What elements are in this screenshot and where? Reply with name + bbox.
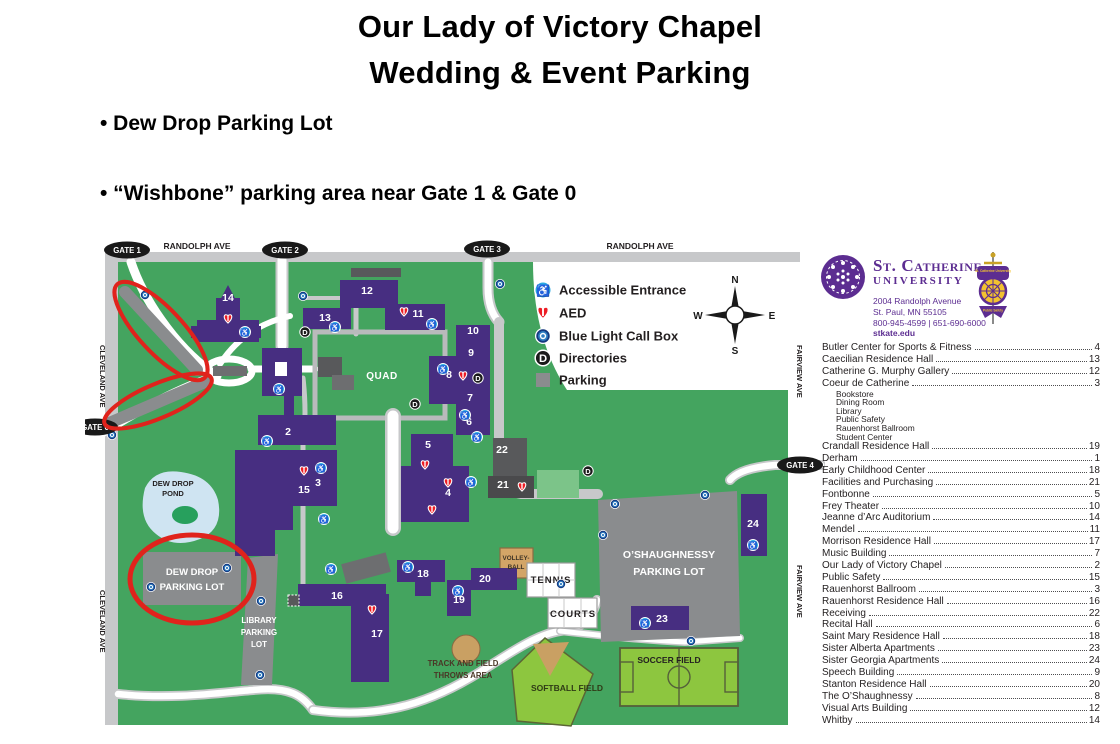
dotted-leader: [947, 603, 1087, 604]
svg-text:♿: ♿: [460, 411, 469, 420]
dewdrop-lot-label-2: PARKING LOT: [160, 582, 225, 593]
directory-entry: Speech Building9: [822, 667, 1100, 679]
fairview-ave-label-top: FAIRVIEW AVE: [795, 345, 804, 398]
building-label-12: 12: [361, 285, 373, 297]
oshaughnessy-lot-label-2: PARKING LOT: [633, 566, 705, 578]
directory-entry: Butler Center for Sports & Fitness4: [822, 342, 1100, 354]
directory-entry-page: 3: [1094, 378, 1100, 389]
directory-entry-page: 22: [1089, 608, 1100, 619]
dotted-leader: [889, 555, 1092, 556]
directory-entry-page: 15: [1089, 572, 1100, 583]
quad-label: QUAD: [366, 371, 397, 382]
svg-text:♿: ♿: [330, 323, 339, 332]
directory-entry-page: 19: [1089, 441, 1100, 452]
blue-light-icon: [256, 596, 265, 605]
directory-entry-page: 23: [1089, 643, 1100, 654]
directory-entry: Music Building7: [822, 548, 1100, 560]
stkate-logo: [820, 254, 866, 300]
svg-text:GATE 2: GATE 2: [271, 246, 299, 255]
directory-sub-entry: Student Center: [836, 433, 1100, 442]
building-directory: Butler Center for Sports & Fitness4Caeci…: [822, 342, 1100, 727]
gray-building-quad-2: [332, 375, 354, 390]
svg-text:♿: ♿: [240, 328, 249, 337]
dotted-leader: [882, 508, 1087, 509]
directory-entry-name: Facilities and Purchasing: [822, 477, 933, 488]
directory-entry: Caecilian Residence Hall13: [822, 354, 1100, 366]
accessible-icon: ♿: [427, 319, 438, 330]
svg-text:♿: ♿: [427, 320, 436, 329]
dotted-leader: [856, 722, 1087, 723]
directory-entry-name: Stanton Residence Hall: [822, 679, 927, 690]
directory-entry-page: 24: [1089, 655, 1100, 666]
directory-entry-page: 10: [1089, 501, 1100, 512]
throws-label-2: THROWS AREA: [434, 671, 493, 680]
building-1-2-connector: [284, 394, 294, 418]
address-phone: 800-945-4599 | 651-690-6000: [873, 318, 986, 329]
directory-entry-name: Caecilian Residence Hall: [822, 354, 933, 365]
dotted-leader: [883, 579, 1087, 580]
svg-text:♿: ♿: [319, 515, 328, 524]
directory-entry-name: Whitby: [822, 715, 853, 726]
dotted-leader: [858, 531, 1088, 532]
public-safety-badge: St. Catherine University Public Safety: [973, 250, 1013, 326]
legend-label-accessible: Accessible Entrance: [559, 283, 686, 298]
page-title: Our Lady of Victory Chapel Wedding & Eve…: [0, 4, 1120, 96]
directory-entry-page: 17: [1089, 536, 1100, 547]
accessible-icon: ♿: [326, 564, 337, 575]
university-header: St. Catherine University 2004 Randolph A…: [820, 250, 1112, 344]
badge-top-text: St. Catherine University: [975, 269, 1011, 273]
accessible-icon: ♿: [330, 322, 341, 333]
directories-icon: D: [300, 327, 310, 337]
directory-entry-name: Butler Center for Sports & Fitness: [822, 342, 972, 353]
building-label-17: 17: [371, 628, 383, 640]
university-wordmark: St. Catherine University: [873, 256, 982, 287]
dotted-leader: [938, 650, 1087, 651]
directory-entry-name: Receiving: [822, 608, 866, 619]
directory-entry: Sister Alberta Apartments23: [822, 643, 1100, 655]
directory-entry-name: Morrison Residence Hall: [822, 536, 931, 547]
svg-text:♿: ♿: [748, 541, 757, 550]
building-4: [401, 466, 469, 522]
building-label-7: 7: [467, 392, 473, 404]
directory-entry-name: Fontbonne: [822, 489, 870, 500]
directory-entry-name: Coeur de Catherine: [822, 378, 909, 389]
directory-entry: Visual Arts Building12: [822, 703, 1100, 715]
blue-light-icon: [686, 636, 695, 645]
dotted-leader: [869, 615, 1087, 616]
directory-entry-page: 11: [1090, 524, 1100, 535]
dotted-leader: [942, 662, 1087, 663]
directories-icon: D: [535, 350, 551, 366]
accessible-icon: ♿: [748, 540, 759, 551]
throws-label-1: TRACK AND FIELD: [428, 659, 499, 668]
blue-light-icon: [146, 582, 155, 591]
accessible-icon: ♿: [319, 514, 330, 525]
directory-entry-name: Saint Mary Residence Hall: [822, 631, 940, 642]
accessible-icon: ♿: [316, 463, 327, 474]
dotted-leader: [861, 460, 1093, 461]
building-label-5: 5: [425, 439, 431, 451]
volleyball-label-1: VOLLEY-: [503, 555, 530, 562]
dotted-leader: [945, 567, 1093, 568]
gray-building-quad-1: [318, 357, 342, 377]
directory-entry-name: Rauenhorst Ballroom: [822, 584, 916, 595]
dew-drop-parking-lot: [143, 552, 241, 605]
directory-entry: Fontbonne5: [822, 489, 1100, 501]
dotted-leader: [975, 349, 1093, 350]
sidebar: St. Catherine University 2004 Randolph A…: [820, 250, 1112, 344]
directory-entry: Rauenhorst Ballroom3: [822, 584, 1100, 596]
directory-entry: Coeur de Catherine3: [822, 378, 1100, 390]
dotted-leader: [897, 674, 1092, 675]
dotted-leader: [930, 686, 1087, 687]
accessible-icon: ♿: [240, 327, 251, 338]
directory-entry-page: 12: [1089, 703, 1100, 714]
directory-entry: Our Lady of Victory Chapel2: [822, 560, 1100, 572]
svg-text:♿: ♿: [316, 464, 325, 473]
dotted-leader: [912, 385, 1092, 386]
fairview-ave-label-bottom: FAIRVIEW AVE: [795, 565, 804, 618]
oshaughnessy-lot-label-1: O’SHAUGHNESSY: [623, 549, 715, 561]
directory-entry-name: Music Building: [822, 548, 886, 559]
svg-text:D: D: [302, 328, 308, 337]
light-green-building: [537, 470, 579, 498]
directory-entry-page: 7: [1094, 548, 1100, 559]
svg-text:GATE 1: GATE 1: [113, 246, 141, 255]
building-label-13: 13: [319, 312, 331, 324]
directory-entry: Whitby14: [822, 715, 1100, 727]
directory-entry-page: 14: [1089, 715, 1100, 726]
accessible-icon: ♿: [460, 410, 471, 421]
directory-entry: Early Childhood Center18: [822, 465, 1100, 477]
blue-light-icon: [222, 563, 231, 572]
directory-entry-name: Derham: [822, 453, 858, 464]
directory-entry-page: 8: [1094, 691, 1100, 702]
directory-entry-page: 2: [1094, 560, 1100, 571]
building-label-9: 9: [468, 347, 474, 359]
softball-label: SOFTBALL FIELD: [531, 683, 603, 693]
directory-entry: Receiving22: [822, 608, 1100, 620]
dotted-leader: [934, 543, 1087, 544]
dotted-leader: [928, 472, 1086, 473]
accessible-icon: ♿: [535, 282, 552, 299]
parking-icon: [536, 373, 550, 387]
directory-entry: Mendel11: [822, 524, 1100, 536]
blue-light-icon: [255, 670, 264, 679]
building-label-23: 23: [656, 613, 668, 625]
directory-entry-name: The O’Shaughnessy: [822, 691, 913, 702]
directory-entry-page: 4: [1094, 342, 1100, 353]
dotted-leader: [916, 698, 1093, 699]
accessible-icon: ♿: [403, 562, 414, 573]
map-gate-4: GATE 4: [777, 457, 823, 474]
directory-entry-name: Rauenhorst Residence Hall: [822, 596, 944, 607]
title-line-1: Our Lady of Victory Chapel: [0, 4, 1120, 50]
university-name: St. Catherine: [873, 256, 982, 275]
directory-entry-page: 18: [1089, 465, 1100, 476]
bullet-wishbone: • “Wishbone” parking area near Gate 1 & …: [100, 182, 576, 206]
map-gate-1: GATE 1: [104, 242, 150, 259]
directory-entry: Sister Georgia Apartments24: [822, 655, 1100, 667]
pond-label-1: DEW DROP: [152, 479, 193, 488]
blue-light-icon: [700, 490, 709, 499]
svg-text:♿: ♿: [403, 563, 412, 572]
address-line-1: 2004 Randolph Avenue: [873, 296, 986, 307]
directory-sub-list: BookstoreDining RoomLibraryPublic Safety…: [822, 390, 1100, 442]
building-label-4: 4: [445, 487, 451, 499]
dotted-leader: [873, 496, 1093, 497]
directory-entry-name: Mendel: [822, 524, 855, 535]
dotted-leader: [943, 638, 1087, 639]
building-label-10: 10: [467, 325, 479, 337]
legend-label-parking: Parking: [559, 373, 607, 388]
directory-entry-name: Frey Theater: [822, 501, 879, 512]
compass-e: E: [769, 311, 776, 322]
directory-entry-name: Speech Building: [822, 667, 894, 678]
title-line-2: Wedding & Event Parking: [0, 50, 1120, 96]
volleyball-label-2: BALL: [508, 564, 525, 571]
directories-icon: D: [410, 399, 420, 409]
hatched-building: [288, 595, 299, 606]
svg-text:D: D: [539, 353, 547, 365]
directory-entry: Derham1: [822, 453, 1100, 465]
compass-s: S: [732, 346, 739, 357]
building-label-1: 1: [279, 364, 285, 376]
accessible-icon: ♿: [438, 364, 449, 375]
directory-entry-page: 21: [1089, 477, 1100, 488]
library-lot-label-2: PARKING: [241, 628, 277, 637]
legend-label-blue-light: Blue Light Call Box: [559, 329, 679, 344]
cleveland-ave-road: [105, 252, 118, 725]
directory-entry: The O’Shaughnessy8: [822, 691, 1100, 703]
directory-entry-name: Jeanne d’Arc Auditorium: [822, 512, 930, 523]
cleveland-ave-label-bottom: CLEVELAND AVE: [98, 590, 107, 653]
directory-entry-name: Early Childhood Center: [822, 465, 925, 476]
badge-bottom-text: Public Safety: [983, 309, 1003, 313]
building-label-21: 21: [497, 479, 509, 491]
accessible-icon: ♿: [262, 436, 273, 447]
accessible-icon: ♿: [466, 477, 477, 488]
directory-entry: Crandall Residence Hall19: [822, 441, 1100, 453]
randolph-ave-road: [110, 252, 800, 262]
address-line-2: St. Paul, MN 55105: [873, 307, 986, 318]
map-gate-2: GATE 2: [262, 242, 308, 259]
dotted-leader: [933, 519, 1086, 520]
cleveland-ave-label-top: CLEVELAND AVE: [98, 345, 107, 408]
directory-entry-page: 14: [1089, 512, 1100, 523]
dotted-leader: [919, 591, 1093, 592]
university-address: 2004 Randolph Avenue St. Paul, MN 55105 …: [873, 296, 986, 339]
svg-text:♿: ♿: [472, 433, 481, 442]
library-lot-label-3: LOT: [251, 640, 267, 649]
legend-label-aed: AED: [559, 306, 586, 321]
directory-entry-name: Visual Arts Building: [822, 703, 907, 714]
directory-entry-name: Our Lady of Victory Chapel: [822, 560, 942, 571]
directory-entry-name: Sister Alberta Apartments: [822, 643, 935, 654]
building-label-2: 2: [285, 426, 291, 438]
directory-entry: Recital Hall6: [822, 619, 1100, 631]
svg-text:♿: ♿: [466, 478, 475, 487]
building-label-22: 22: [496, 444, 508, 456]
directory-entry-page: 18: [1089, 631, 1100, 642]
randolph-ave-label-right: RANDOLPH AVE: [606, 241, 673, 251]
directory-entry-page: 12: [1089, 366, 1100, 377]
accessible-icon: ♿: [274, 384, 285, 395]
building-21: [488, 476, 534, 498]
building-label-14: 14: [222, 292, 234, 304]
university-website: stkate.edu: [873, 328, 986, 339]
directory-entry: Saint Mary Residence Hall18: [822, 631, 1100, 643]
directory-entry: Frey Theater10: [822, 501, 1100, 513]
building-label-3: 3: [315, 477, 321, 489]
blue-light-icon: [495, 279, 504, 288]
directory-entry-name: Catherine G. Murphy Gallery: [822, 366, 949, 377]
directory-entry-name: Recital Hall: [822, 619, 873, 630]
directory-entry-page: 3: [1094, 584, 1100, 595]
building-label-11: 11: [412, 308, 423, 320]
directory-entry: Stanton Residence Hall20: [822, 679, 1100, 691]
blue-light-icon: [556, 579, 565, 588]
accessible-icon: ♿: [453, 586, 464, 597]
svg-text:D: D: [412, 400, 418, 409]
university-subname: University: [873, 275, 982, 287]
directory-entry-page: 5: [1094, 489, 1100, 500]
building-label-18: 18: [417, 568, 429, 580]
svg-text:D: D: [475, 374, 481, 383]
library-lot-label-1: LIBRARY: [241, 616, 277, 625]
directory-entry: Facilities and Purchasing21: [822, 477, 1100, 489]
directory-entry-page: 1: [1094, 453, 1100, 464]
pond-label-2: POND: [162, 489, 184, 498]
directory-entry: Jeanne d’Arc Auditorium14: [822, 512, 1100, 524]
directory-entry-page: 16: [1089, 596, 1100, 607]
svg-text:D: D: [585, 467, 591, 476]
directory-entry: Public Safety15: [822, 572, 1100, 584]
dotted-leader: [876, 626, 1093, 627]
directory-entry: Rauenhorst Residence Hall16: [822, 596, 1100, 608]
svg-text:GATE 4: GATE 4: [786, 461, 814, 470]
svg-text:♿: ♿: [438, 365, 447, 374]
building-label-15: 15: [298, 484, 310, 496]
accessible-icon: ♿: [640, 618, 651, 629]
map-gate-3: GATE 3: [464, 241, 510, 258]
directory-entry-page: 13: [1089, 354, 1100, 365]
building-5: [411, 434, 453, 466]
compass-n: N: [731, 275, 738, 286]
accessible-icon: ♿: [472, 432, 483, 443]
svg-text:♿: ♿: [536, 283, 550, 297]
directory-entry-name: Crandall Residence Hall: [822, 441, 929, 452]
directory-entry: Catherine G. Murphy Gallery12: [822, 366, 1100, 378]
directory-entry: Morrison Residence Hall17: [822, 536, 1100, 548]
blue-light-icon: [536, 329, 551, 344]
dotted-leader: [936, 484, 1087, 485]
compass-w: W: [693, 311, 703, 322]
dotted-leader: [952, 373, 1087, 374]
soccer-label: SOCCER FIELD: [637, 655, 700, 665]
dotted-leader: [936, 361, 1087, 362]
directory-entry-page: 20: [1089, 679, 1100, 690]
building-label-24: 24: [747, 518, 759, 530]
courts-label: COURTS: [550, 609, 596, 620]
legend-label-directories: Directories: [559, 351, 627, 366]
directory-entry-name: Public Safety: [822, 572, 880, 583]
blue-light-icon: [598, 530, 607, 539]
dotted-leader: [932, 448, 1087, 449]
directory-entry-name: Sister Georgia Apartments: [822, 655, 939, 666]
svg-text:GATE 3: GATE 3: [473, 245, 501, 254]
campus-map: RANDOLPH AVE RANDOLPH AVE CLEVELAND AVE …: [85, 238, 825, 744]
svg-text:♿: ♿: [640, 619, 649, 628]
directory-entry-page: 6: [1094, 619, 1100, 630]
blue-light-icon: [610, 499, 619, 508]
building-label-16: 16: [331, 590, 343, 602]
directory-entry-page: 9: [1094, 667, 1100, 678]
directories-icon: D: [583, 466, 593, 476]
building-label-20: 20: [479, 573, 491, 585]
dewdrop-lot-label-1: DEW DROP: [166, 567, 219, 578]
building-20: [471, 568, 517, 590]
blue-light-icon: [298, 291, 307, 300]
svg-text:♿: ♿: [274, 385, 283, 394]
svg-text:♿: ♿: [262, 437, 271, 446]
directory-sub-entry: Dining Room: [836, 398, 1100, 407]
gray-building-north: [351, 268, 401, 277]
svg-text:♿: ♿: [326, 565, 335, 574]
dotted-leader: [910, 710, 1086, 711]
directories-icon: D: [473, 373, 483, 383]
svg-text:♿: ♿: [453, 587, 462, 596]
bullet-dew-drop: • Dew Drop Parking Lot: [100, 112, 333, 136]
randolph-ave-label-left: RANDOLPH AVE: [163, 241, 230, 251]
